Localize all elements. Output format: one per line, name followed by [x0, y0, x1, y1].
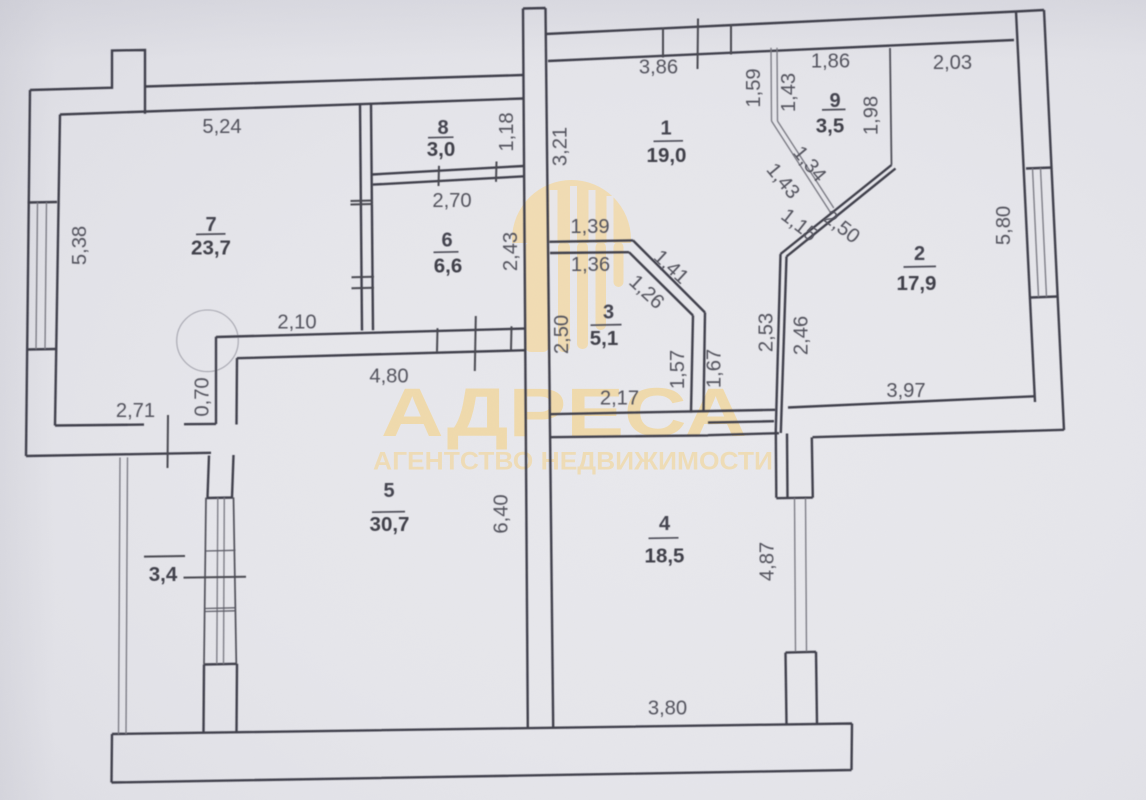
svg-text:1,36: 1,36: [571, 254, 610, 276]
svg-text:2,50: 2,50: [551, 315, 573, 354]
svg-text:0,70: 0,70: [192, 377, 214, 416]
svg-text:5,1: 5,1: [590, 327, 619, 350]
svg-text:2,71: 2,71: [116, 400, 155, 422]
svg-text:4,87: 4,87: [757, 542, 779, 581]
svg-text:1,98: 1,98: [861, 96, 883, 135]
svg-text:18,5: 18,5: [645, 545, 685, 568]
svg-text:23,7: 23,7: [191, 237, 231, 260]
svg-text:3,4: 3,4: [149, 563, 178, 586]
svg-text:3,0: 3,0: [427, 138, 456, 161]
svg-text:4: 4: [659, 513, 671, 535]
svg-text:5,24: 5,24: [202, 116, 241, 138]
svg-text:5,80: 5,80: [993, 206, 1015, 245]
svg-text:8: 8: [437, 117, 448, 139]
svg-text:3,80: 3,80: [648, 698, 687, 720]
svg-text:2,03: 2,03: [933, 52, 972, 74]
svg-text:17,9: 17,9: [897, 272, 937, 295]
svg-text:19,0: 19,0: [647, 144, 687, 167]
svg-text:1: 1: [660, 118, 671, 140]
svg-text:2,46: 2,46: [791, 316, 813, 355]
svg-text:2,43: 2,43: [500, 232, 522, 271]
svg-text:1,57: 1,57: [667, 350, 689, 389]
svg-text:6,40: 6,40: [491, 494, 513, 533]
svg-text:9: 9: [829, 90, 840, 112]
svg-text:7: 7: [205, 214, 216, 236]
svg-text:5,38: 5,38: [69, 226, 91, 265]
svg-text:5: 5: [383, 480, 394, 502]
svg-text:2,53: 2,53: [756, 313, 778, 352]
svg-text:1,67: 1,67: [704, 349, 726, 388]
svg-text:1,86: 1,86: [811, 51, 850, 73]
svg-text:2: 2: [914, 243, 925, 265]
svg-text:3,5: 3,5: [816, 115, 845, 138]
svg-text:2,10: 2,10: [277, 312, 316, 334]
svg-text:2,17: 2,17: [600, 388, 639, 410]
svg-text:1,39: 1,39: [570, 216, 609, 238]
svg-text:2,70: 2,70: [432, 190, 471, 212]
svg-text:30,7: 30,7: [370, 513, 410, 536]
svg-text:1,59: 1,59: [743, 68, 765, 107]
svg-text:3,21: 3,21: [550, 127, 572, 166]
svg-text:6: 6: [441, 230, 452, 252]
svg-text:3: 3: [603, 302, 614, 324]
svg-text:3,86: 3,86: [639, 57, 678, 79]
svg-text:1,43: 1,43: [778, 73, 800, 112]
svg-text:1,18: 1,18: [496, 112, 518, 151]
svg-text:4,80: 4,80: [369, 366, 408, 388]
svg-text:3,97: 3,97: [886, 380, 925, 402]
svg-text:6,6: 6,6: [434, 255, 463, 278]
